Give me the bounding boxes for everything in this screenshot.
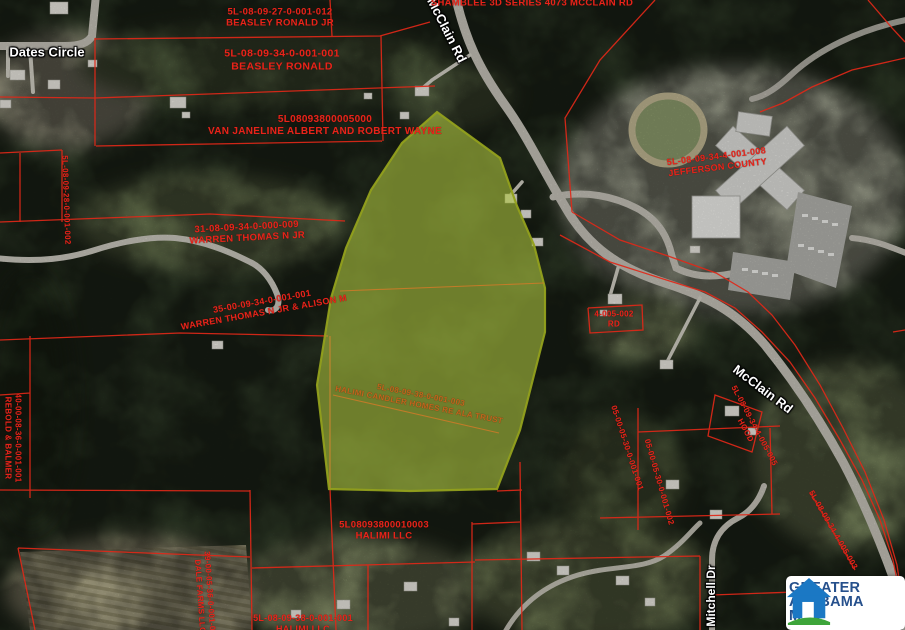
mls-logo: GREATER ALABAMA MLS [786, 576, 905, 630]
satellite-map-art [0, 0, 905, 630]
map-canvas[interactable]: Dates CircleMcClain RdMcClain RdMitchell… [0, 0, 905, 630]
mls-house-icon [786, 576, 832, 626]
